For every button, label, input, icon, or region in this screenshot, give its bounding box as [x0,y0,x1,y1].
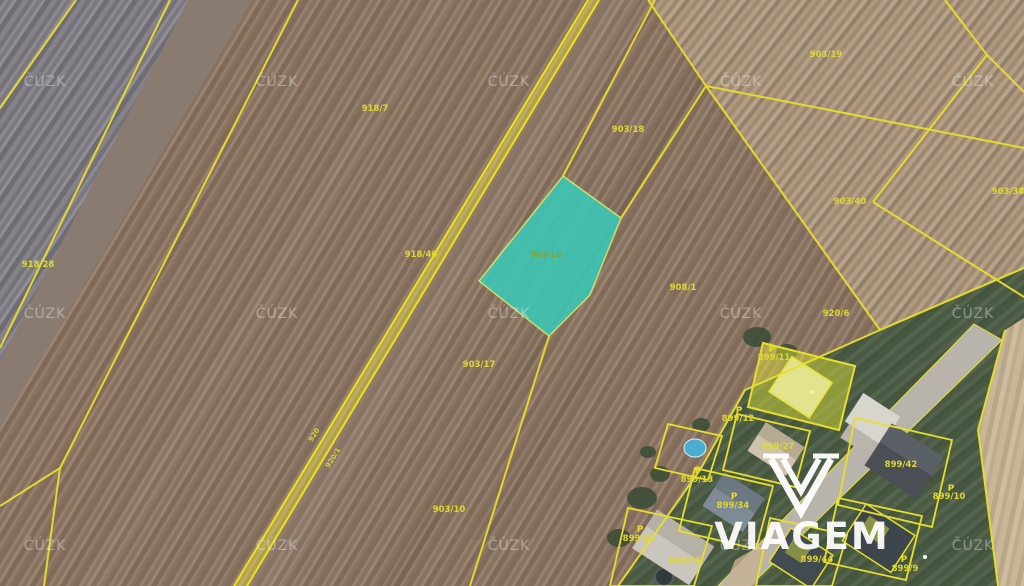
parcel-label: 918/40 [405,250,438,260]
cuzk-watermark: ČÚZK [952,304,995,322]
parcel-label: 903/17 [463,360,496,370]
cuzk-watermark: ČÚZK [24,304,67,322]
parcel-label: 903/10 [433,505,466,515]
parcel-label: 903/40 [834,197,867,207]
landuse-symbol-icon: P [948,484,955,494]
cuzk-watermark: ČÚZK [720,72,763,90]
cadastral-map-viewport[interactable]: 918/7 903/18 903/19 903/38 903/40 918/28… [0,0,1024,586]
parcel-label: 903/19 [810,50,843,60]
cuzk-watermark: ČÚZK [720,304,763,322]
parcel-label: 899/15 [669,557,702,567]
parcel-label: 920/6 [823,309,850,319]
cuzk-watermark: ČÚZK [952,536,995,554]
parcel-label: 899/42 [885,460,918,470]
parcel-label: 903/38 [992,187,1024,197]
highlighted-parcel-label: 903/16 [531,250,562,259]
landuse-symbol-icon: P [736,406,743,416]
parcel-label: 918/7 [362,104,389,114]
cadastral-map: 918/7 903/18 903/19 903/38 903/40 918/28… [0,0,1024,586]
cuzk-watermark: ČÚZK [256,304,299,322]
cuzk-watermark: ČÚZK [256,72,299,90]
viagem-wordmark: VIAGEM [714,515,890,558]
swimming-pool [684,439,706,457]
cuzk-watermark: ČÚZK [952,72,995,90]
cuzk-watermark: ČÚZK [24,72,67,90]
cuzk-watermark: ČÚZK [488,72,531,90]
parcel-label: 918/28 [22,260,55,270]
landuse-symbol-icon: P [731,492,738,502]
parcel-label: 899/14 [623,534,656,544]
parcel-label: 903/18 [612,125,645,135]
parcel-label: 899/13 [681,475,714,485]
cuzk-watermark: ČÚZK [488,536,531,554]
landuse-symbol-icon: P [637,525,644,535]
landuse-symbol-icon: P [769,345,776,355]
survey-point [923,555,927,559]
cuzk-watermark: ČÚZK [24,536,67,554]
parcel-label: 899/34 [717,501,750,511]
cuzk-watermark: ČÚZK [256,536,299,554]
parcel-label: 899/9 [892,564,919,574]
landuse-symbol-icon: P [695,466,702,476]
cuzk-watermark: ČÚZK [488,304,531,322]
parcel-label: 908/1 [670,283,697,293]
parcel-label: 899/27 [762,442,795,452]
landuse-symbol-icon: P [901,555,908,565]
